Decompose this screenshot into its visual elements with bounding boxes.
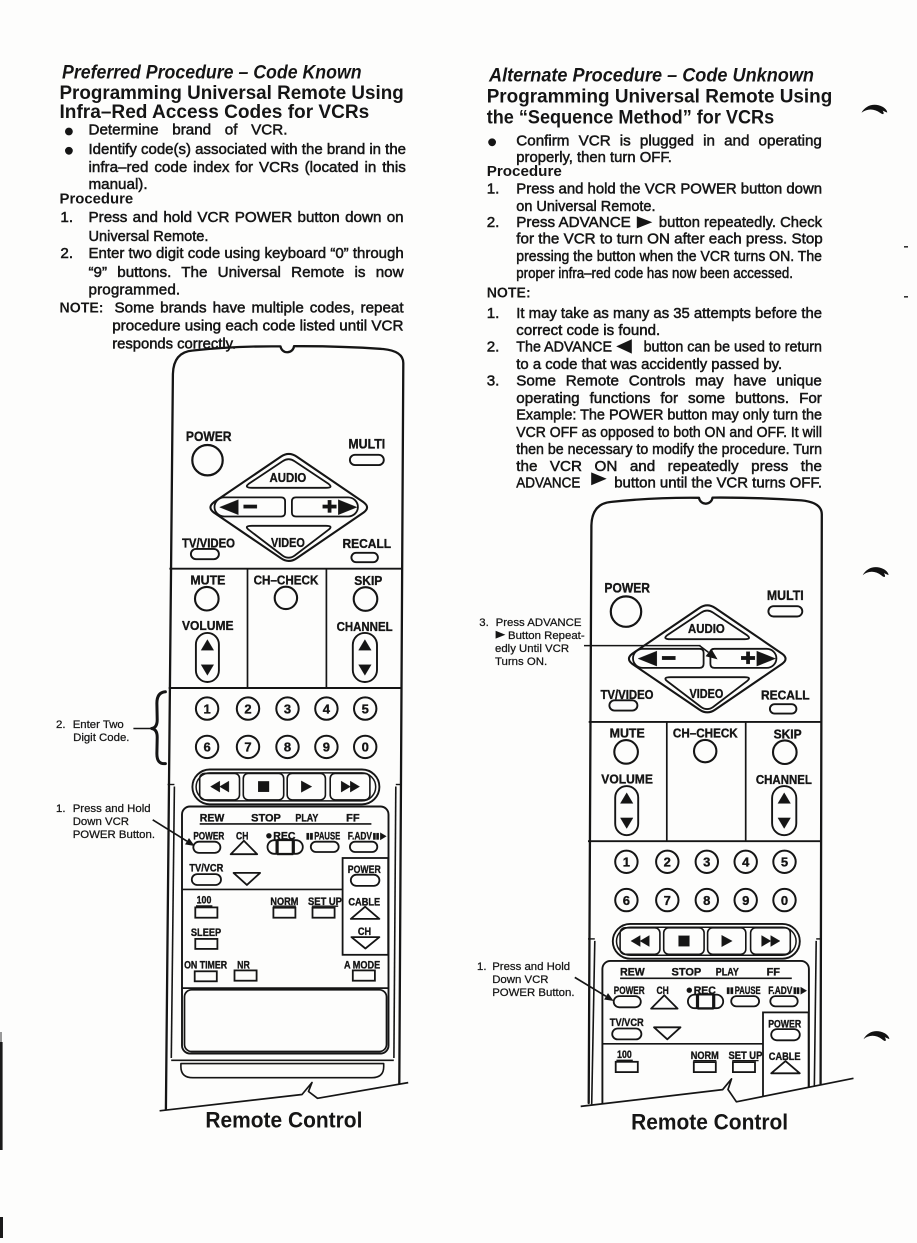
svg-text:STOP: STOP [251, 812, 281, 824]
svg-text:1.: 1. [477, 961, 487, 973]
svg-text:Digit Code.: Digit Code. [73, 732, 129, 744]
svg-text:NOTE:: NOTE: [487, 285, 531, 302]
svg-text:MULTI: MULTI [767, 588, 804, 603]
svg-text:the “Sequence Method” for VCRs: the “Sequence Method” for VCRs [487, 107, 775, 129]
svg-text:MUTE: MUTE [610, 726, 645, 741]
svg-text:2.: 2. [56, 719, 66, 731]
svg-text:the VCR ON and repeatedly pres: the VCR ON and repeatedly press the [516, 458, 822, 475]
svg-text:PAUSE: PAUSE [314, 831, 340, 843]
svg-text:infra–red code index for VCRs: infra–red code index for VCRs (located i… [89, 159, 407, 176]
svg-text:SKIP: SKIP [774, 726, 802, 741]
svg-text:9: 9 [742, 893, 749, 908]
svg-text:ON TIMER: ON TIMER [184, 960, 227, 972]
svg-text:Preferred Procedure – Code Kno: Preferred Procedure – Code Known [62, 62, 362, 84]
svg-text:POWER Button.: POWER Button. [73, 829, 155, 841]
svg-text:Down VCR: Down VCR [73, 816, 129, 828]
svg-text:FF: FF [346, 812, 360, 824]
svg-text:FF: FF [767, 967, 781, 979]
svg-text:Some brands have multiple code: Some brands have multiple codes, repeat [115, 300, 405, 317]
svg-text:100: 100 [617, 1049, 632, 1061]
svg-text:7: 7 [244, 740, 251, 755]
svg-text:Remote Control: Remote Control [631, 1109, 788, 1134]
svg-text:9: 9 [323, 740, 330, 755]
svg-text:TV/VCR: TV/VCR [189, 863, 223, 875]
svg-text:CHANNEL: CHANNEL [337, 619, 393, 634]
svg-text:Button Repeat-: Button Repeat- [508, 630, 585, 642]
svg-text:3.: 3. [487, 373, 500, 390]
svg-text:Down VCR: Down VCR [492, 974, 548, 986]
svg-text:CH–CHECK: CH–CHECK [673, 726, 738, 741]
svg-text:0: 0 [362, 740, 369, 755]
svg-text:Identify code(s) associated wi: Identify code(s) associated with the bra… [89, 141, 407, 158]
svg-text:Some Remote Controls may have: Some Remote Controls may have unique [516, 373, 822, 390]
svg-text:Press and hold VCR POWER butto: Press and hold VCR POWER button down on [89, 209, 404, 226]
svg-text:VCR OFF as opposed to both ON: VCR OFF as opposed to both ON and OFF. I… [516, 424, 822, 441]
svg-text:responds correctly.: responds correctly. [112, 335, 236, 352]
svg-text:on Universal Remote.: on Universal Remote. [516, 198, 655, 215]
svg-text:5: 5 [781, 855, 788, 870]
svg-text:TV/VCR: TV/VCR [610, 1017, 644, 1029]
svg-text:MULTI: MULTI [348, 437, 385, 452]
svg-text:4: 4 [323, 701, 331, 716]
svg-text:button can be used to return: button can be used to return [644, 339, 822, 356]
svg-text:VOLUME: VOLUME [182, 618, 234, 633]
svg-text:2.: 2. [487, 339, 500, 356]
svg-text:button repeatedly. Check: button repeatedly. Check [659, 214, 822, 231]
svg-text:F.ADV: F.ADV [348, 831, 373, 843]
svg-text:1.: 1. [60, 209, 73, 226]
svg-text:SLEEP: SLEEP [191, 927, 221, 939]
svg-text:STOP: STOP [672, 967, 702, 979]
svg-text:2.: 2. [487, 214, 500, 231]
svg-text:Press ADVANCE: Press ADVANCE [496, 617, 582, 629]
svg-text:Programming Universal Remote U: Programming Universal Remote Using [487, 85, 833, 107]
svg-text:CHANNEL: CHANNEL [756, 772, 812, 787]
svg-text:Enter Two: Enter Two [73, 719, 124, 731]
svg-text:pressing the button when the V: pressing the button when the VCR turns O… [516, 248, 822, 265]
svg-text:then be necessary to modify th: then be necessary to modify the procedur… [516, 441, 822, 458]
svg-text:REW: REW [620, 967, 645, 979]
svg-text:Universal Remote.: Universal Remote. [89, 228, 209, 245]
svg-text:POWER: POWER [604, 580, 650, 595]
svg-text:1: 1 [623, 855, 630, 870]
svg-text:CH: CH [656, 985, 668, 997]
svg-text:Press and Hold: Press and Hold [73, 803, 151, 815]
svg-text:4: 4 [742, 855, 750, 870]
svg-text:CH–CHECK: CH–CHECK [254, 573, 319, 588]
svg-text:AUDIO: AUDIO [270, 470, 307, 485]
svg-text:2: 2 [664, 855, 671, 870]
svg-text:NOTE:: NOTE: [60, 300, 104, 317]
svg-text:Turns ON.: Turns ON. [495, 656, 547, 668]
svg-text:F.ADV: F.ADV [768, 985, 793, 997]
svg-text:3: 3 [284, 701, 291, 716]
svg-text:PAUSE: PAUSE [735, 985, 761, 997]
svg-text:REW: REW [200, 812, 225, 824]
svg-text:1.: 1. [487, 305, 500, 322]
svg-text:ADVANCE: ADVANCE [516, 474, 580, 491]
svg-text:Procedure: Procedure [60, 190, 134, 207]
svg-text:100: 100 [197, 894, 212, 906]
svg-text:VIDEO: VIDEO [271, 535, 305, 550]
svg-text:POWER: POWER [186, 429, 232, 444]
svg-text:PLAY: PLAY [295, 812, 319, 824]
svg-text:correct code is found.: correct code is found. [516, 322, 660, 339]
svg-text:Enter two digit code using key: Enter two digit code using keyboard “0” … [89, 245, 404, 262]
svg-text:POWER: POWER [193, 831, 224, 843]
svg-text:RECALL: RECALL [343, 537, 392, 551]
svg-text:edly Until VCR: edly Until VCR [495, 643, 569, 655]
svg-text:7: 7 [664, 893, 671, 908]
svg-text:1.: 1. [56, 803, 66, 815]
svg-text:3: 3 [703, 855, 710, 870]
svg-text:AUDIO: AUDIO [688, 621, 725, 636]
svg-text:RECALL: RECALL [761, 689, 810, 703]
svg-text:0: 0 [781, 893, 788, 908]
svg-text:8: 8 [284, 740, 291, 755]
svg-text:“9” buttons. The Universal Rem: “9” buttons. The Universal Remote is now [89, 264, 404, 281]
svg-text:2: 2 [244, 701, 251, 716]
svg-text:programmed.: programmed. [89, 282, 181, 299]
svg-text:Remote Control: Remote Control [205, 1107, 362, 1132]
svg-text:Press and Hold: Press and Hold [492, 961, 570, 973]
svg-text:1.: 1. [487, 180, 500, 197]
svg-text:8: 8 [703, 893, 710, 908]
svg-text:Infra–Red Access Codes for VCR: Infra–Red Access Codes for VCRs [60, 101, 370, 123]
svg-text:to a code that was accidently: to a code that was accidently passed by. [516, 356, 782, 373]
svg-text:Example: The POWER button may: Example: The POWER button may only turn … [516, 407, 822, 424]
svg-text:2.: 2. [60, 245, 73, 262]
svg-text:VOLUME: VOLUME [601, 771, 653, 786]
svg-text:Press ADVANCE: Press ADVANCE [516, 214, 631, 231]
svg-text:proper infra–red code has now: proper infra–red code has now been acces… [516, 265, 793, 282]
svg-text:VIDEO: VIDEO [690, 686, 724, 701]
svg-text:MUTE: MUTE [190, 573, 225, 588]
svg-text:1: 1 [203, 701, 210, 716]
svg-text:button until the VCR turns OFF: button until the VCR turns OFF. [614, 474, 822, 491]
svg-text:CH: CH [236, 831, 248, 843]
svg-text:Press and hold the VCR POWER b: Press and hold the VCR POWER button down [516, 180, 822, 197]
svg-text:3.: 3. [479, 617, 489, 629]
svg-text:SKIP: SKIP [354, 573, 382, 588]
svg-text:It may take as many as 35 atte: It may take as many as 35 attempts befor… [516, 305, 822, 322]
svg-text:Confirm VCR is plugged in and: Confirm VCR is plugged in and operating [516, 133, 822, 150]
svg-text:procedure using each code list: procedure using each code listed until V… [112, 317, 403, 334]
svg-text:The ADVANCE: The ADVANCE [516, 339, 612, 356]
svg-text:POWER: POWER [614, 985, 645, 997]
svg-text:Determine brand of VCR.: Determine brand of VCR. [89, 122, 288, 139]
svg-text:POWER Button.: POWER Button. [492, 987, 574, 999]
svg-text:6: 6 [623, 893, 630, 908]
svg-text:6: 6 [203, 740, 210, 755]
svg-text:Procedure: Procedure [487, 163, 562, 180]
svg-text:operating functions for some b: operating functions for some buttons. Fo… [516, 390, 822, 407]
svg-text:for the VCR to turn ON after e: for the VCR to turn ON after each press.… [516, 231, 822, 248]
svg-text:Alternate Procedure – Code Unk: Alternate Procedure – Code Unknown [488, 64, 814, 86]
svg-text:5: 5 [362, 701, 369, 716]
svg-text:PLAY: PLAY [716, 967, 740, 979]
